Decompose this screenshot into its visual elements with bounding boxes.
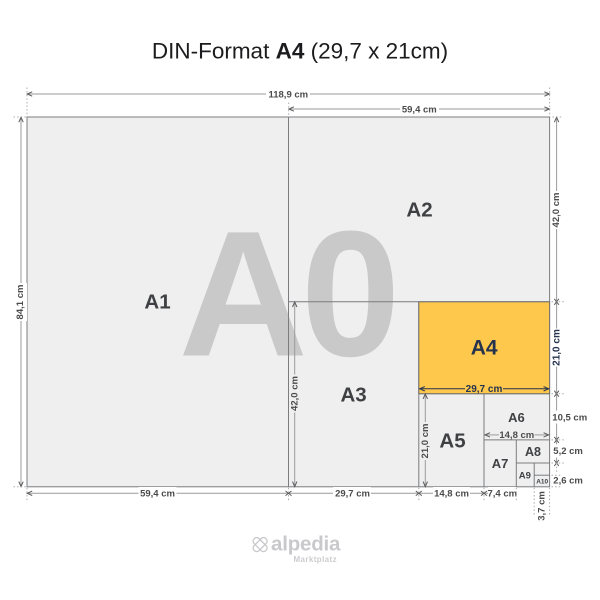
- svg-text:42,0 cm: 42,0 cm: [551, 193, 562, 228]
- svg-text:10,5 cm: 10,5 cm: [552, 412, 587, 423]
- svg-text:14,8 cm: 14,8 cm: [499, 430, 534, 441]
- svg-text:A3: A3: [340, 383, 366, 406]
- svg-text:A9: A9: [519, 470, 531, 481]
- svg-text:alpedia: alpedia: [271, 533, 341, 556]
- svg-text:84,1 cm: 84,1 cm: [15, 285, 26, 320]
- svg-text:118,9 cm: 118,9 cm: [268, 89, 308, 100]
- svg-text:42,0 cm: 42,0 cm: [289, 376, 300, 411]
- svg-text:A10: A10: [536, 478, 548, 485]
- svg-text:14,8 cm: 14,8 cm: [434, 489, 469, 500]
- svg-text:2,6 cm: 2,6 cm: [553, 476, 583, 487]
- svg-text:5,2 cm: 5,2 cm: [553, 446, 583, 457]
- svg-text:A4: A4: [471, 336, 498, 359]
- svg-text:29,7 cm: 29,7 cm: [466, 384, 503, 395]
- svg-text:A7: A7: [492, 456, 509, 471]
- svg-text:A0: A0: [179, 194, 394, 394]
- svg-text:7,4 cm: 7,4 cm: [488, 489, 518, 500]
- svg-text:29,7 cm: 29,7 cm: [335, 489, 370, 500]
- svg-text:21,0 cm: 21,0 cm: [552, 329, 563, 366]
- svg-text:3,7 cm: 3,7 cm: [537, 491, 548, 521]
- svg-text:A8: A8: [525, 445, 541, 459]
- svg-text:A5: A5: [439, 430, 465, 453]
- svg-text:Marktplatz: Marktplatz: [293, 555, 337, 564]
- svg-text:59,4 cm: 59,4 cm: [140, 489, 175, 500]
- svg-text:A2: A2: [406, 199, 432, 222]
- svg-text:A1: A1: [144, 291, 170, 314]
- svg-text:DIN-Format A4 (29,7 x 21cm): DIN-Format A4 (29,7 x 21cm): [152, 39, 448, 64]
- svg-text:59,4 cm: 59,4 cm: [402, 104, 437, 115]
- svg-text:21,0 cm: 21,0 cm: [420, 424, 431, 459]
- svg-text:A6: A6: [508, 410, 525, 425]
